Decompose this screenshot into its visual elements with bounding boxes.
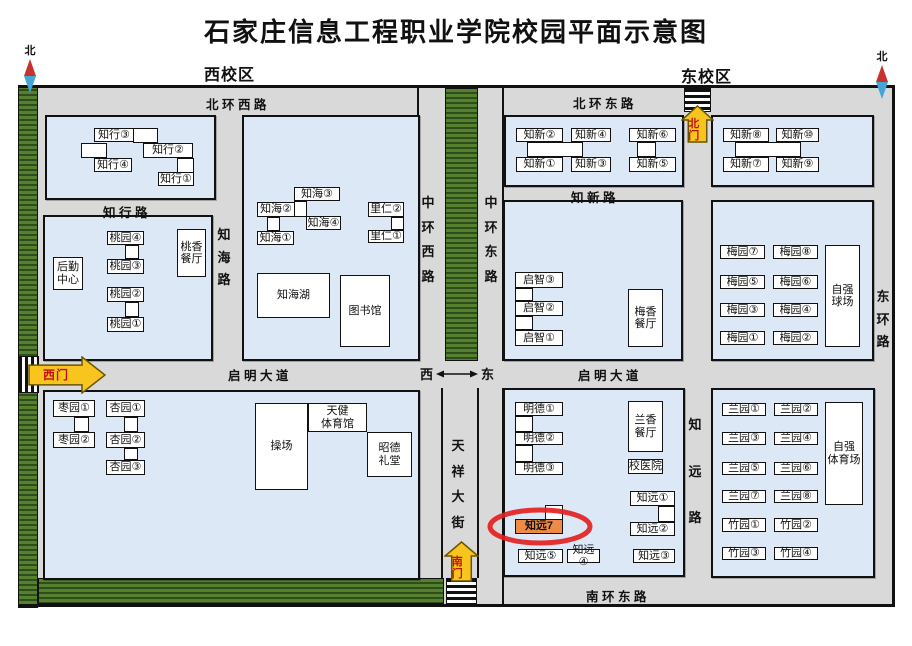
boundary-line bbox=[18, 604, 895, 607]
building-box: 桃园③ bbox=[107, 259, 144, 274]
building-box: 知新⑨ bbox=[776, 157, 819, 172]
building-box: 里仁① bbox=[368, 230, 404, 243]
road-label-char: 东 bbox=[484, 241, 497, 260]
building-box: 知远③ bbox=[633, 549, 675, 563]
direction-west-label: 西 bbox=[420, 364, 433, 383]
building-box: 昭德 礼堂 bbox=[367, 432, 412, 477]
building-box: 知海① bbox=[257, 231, 294, 245]
connector-box bbox=[125, 302, 139, 317]
road-label-char: 西 bbox=[421, 241, 434, 260]
road-label-char: 海 bbox=[217, 247, 230, 266]
connector-box bbox=[267, 217, 280, 231]
road-label: 启 明 大 道 bbox=[228, 365, 288, 384]
building-box: 里仁② bbox=[368, 202, 404, 217]
connector-box bbox=[515, 316, 533, 330]
building-box: 知新⑦ bbox=[723, 157, 769, 172]
road-label-char: 中 bbox=[484, 192, 497, 211]
road-label: 北 环 西 路 bbox=[206, 94, 266, 113]
connector-box bbox=[658, 506, 675, 522]
connector-box bbox=[74, 417, 89, 432]
building-box: 知新⑤ bbox=[629, 157, 676, 172]
building-box: 自强 球场 bbox=[825, 245, 860, 347]
building-box: 知新⑧ bbox=[723, 128, 769, 142]
building-box: 梅园③ bbox=[720, 303, 765, 317]
compass-label: 北 bbox=[25, 42, 36, 58]
building-box: 天健 体育馆 bbox=[308, 403, 367, 432]
road-label: 启 明 大 道 bbox=[578, 365, 638, 384]
building-box: 竹园④ bbox=[774, 547, 818, 560]
building-box: 知新⑥ bbox=[629, 128, 676, 142]
building-box: 兰园⑧ bbox=[774, 490, 818, 503]
connector-box bbox=[515, 288, 533, 301]
road-label: 知 新 路 bbox=[571, 187, 615, 206]
building-box: 杏园③ bbox=[106, 460, 145, 475]
connector-box bbox=[391, 217, 404, 230]
road-label-char: 中 bbox=[421, 192, 434, 211]
compass-arrow-icon bbox=[22, 59, 38, 93]
building-box: 枣园① bbox=[53, 400, 95, 417]
building-box: 枣园② bbox=[53, 432, 95, 448]
building-box: 梅园⑦ bbox=[720, 245, 765, 259]
road-label: 天祥大街 bbox=[451, 435, 465, 531]
building-box: 明德② bbox=[515, 432, 563, 445]
building-box: 操场 bbox=[255, 403, 308, 490]
road-label-char: 祥 bbox=[451, 461, 464, 480]
connector-box bbox=[124, 448, 138, 460]
gate-label: 西门 bbox=[30, 365, 82, 385]
building-box: 杏园② bbox=[106, 432, 145, 448]
building-box: 启智① bbox=[515, 330, 563, 346]
compass-label: 北 bbox=[877, 48, 888, 64]
gate-arrow-west: 西门 bbox=[28, 356, 106, 394]
building-box: 知新⑩ bbox=[776, 128, 819, 142]
boundary-line bbox=[892, 85, 895, 607]
building-box: 兰园⑤ bbox=[722, 462, 766, 475]
building-box: 知行① bbox=[158, 172, 194, 186]
road-label-char: 远 bbox=[688, 461, 701, 480]
building-box: 桃香 餐厅 bbox=[177, 229, 206, 277]
gate-arrow-north: 北门 bbox=[681, 105, 714, 143]
building-box: 梅园① bbox=[720, 331, 765, 345]
connector-box bbox=[294, 201, 307, 217]
building-box: 图书馆 bbox=[340, 275, 390, 347]
gate-label: 北门 bbox=[688, 120, 706, 142]
connector-box bbox=[735, 142, 801, 157]
building-zhiyuan7-highlighted: 知远7 bbox=[515, 519, 563, 534]
direction-east-label: 东 bbox=[481, 364, 494, 383]
building-box: 知远⑤ bbox=[518, 549, 563, 563]
building-box: 梅园④ bbox=[773, 303, 818, 317]
building-box: 自强 体育场 bbox=[825, 402, 863, 505]
building-box: 竹园③ bbox=[722, 547, 766, 560]
road-label-char: 环 bbox=[421, 217, 434, 236]
building-box: 梅园⑥ bbox=[773, 275, 818, 289]
building-box: 知远① bbox=[630, 491, 675, 506]
road-label-char: 街 bbox=[451, 512, 464, 531]
road-label: 北 环 东 路 bbox=[573, 93, 633, 112]
building-box: 知海湖 bbox=[257, 273, 330, 318]
greenbelt bbox=[18, 85, 38, 608]
building-box: 知海② bbox=[257, 202, 295, 217]
building-box: 知远④ bbox=[567, 549, 600, 563]
road-label-char: 大 bbox=[451, 486, 464, 505]
campus-map-canvas: 北 环 西 路北 环 东 路知 行 路知 新 路启 明 大 道启 明 大 道南 … bbox=[0, 0, 912, 646]
building-box: 知新③ bbox=[571, 157, 611, 172]
road-label: 中环西路 bbox=[421, 192, 435, 285]
building-box: 校医院 bbox=[628, 459, 663, 474]
east-campus-label: 东校区 bbox=[681, 63, 732, 87]
building-box: 梅园⑤ bbox=[720, 275, 765, 289]
connector-box bbox=[124, 417, 138, 432]
building-box: 兰园② bbox=[774, 403, 818, 416]
direction-indicator-west-east: 西 东 bbox=[420, 364, 494, 383]
road-label-char: 环 bbox=[876, 309, 889, 328]
building-box: 启智③ bbox=[515, 272, 563, 288]
connector-box bbox=[545, 505, 563, 520]
road-label-char: 知 bbox=[688, 414, 701, 433]
building-box: 杏园① bbox=[106, 400, 145, 417]
building-box: 知新④ bbox=[571, 128, 611, 142]
building-box: 兰园① bbox=[722, 403, 766, 416]
road-label-char: 东 bbox=[876, 286, 889, 305]
building-box: 明德③ bbox=[515, 462, 563, 475]
campus-map-page: 石家庄信息工程职业学院校园平面示意图 北 环 西 路北 环 东 路知 行 路知 … bbox=[0, 0, 912, 646]
greenbelt bbox=[38, 578, 444, 604]
building-box: 桃园④ bbox=[107, 231, 144, 245]
building-box: 梅园② bbox=[773, 331, 818, 345]
road-label-char: 路 bbox=[421, 266, 434, 285]
building-box: 竹园① bbox=[722, 518, 766, 532]
road-label: 东环路 bbox=[876, 286, 890, 350]
compass-north-left: 北 bbox=[22, 42, 38, 93]
road-label-char: 路 bbox=[876, 331, 889, 350]
connector-box bbox=[177, 158, 194, 173]
road-label-char: 天 bbox=[451, 435, 464, 454]
road-label-char: 路 bbox=[217, 269, 230, 288]
gate-arrow-south: 南门 bbox=[444, 541, 479, 582]
compass-north-right: 北 bbox=[874, 48, 890, 99]
building-box: 梅园⑧ bbox=[773, 245, 818, 259]
road-label-char: 知 bbox=[217, 224, 230, 243]
road-label-char: 环 bbox=[484, 217, 497, 236]
connector-box bbox=[515, 416, 533, 432]
building-box: 知海④ bbox=[306, 216, 341, 230]
road-label: 知远路 bbox=[688, 414, 702, 526]
boundary-line bbox=[441, 388, 443, 578]
compass-arrow-icon bbox=[874, 65, 890, 99]
road-label: 知 行 路 bbox=[103, 202, 147, 221]
building-box: 明德① bbox=[515, 402, 563, 416]
building-box: 知远② bbox=[630, 522, 675, 536]
building-box: 后勤 中心 bbox=[53, 257, 83, 290]
connector-box bbox=[637, 142, 656, 157]
building-box: 知行④ bbox=[94, 158, 132, 172]
connector-box bbox=[527, 142, 583, 157]
connector-box bbox=[515, 445, 533, 462]
road-label-char: 路 bbox=[688, 507, 701, 526]
building-box: 桃园① bbox=[107, 317, 144, 332]
road-label: 南 环 东 路 bbox=[586, 586, 646, 605]
building-box: 知行③ bbox=[94, 128, 134, 142]
road-label: 中环东路 bbox=[484, 192, 498, 285]
connector-box bbox=[133, 128, 158, 143]
building-box: 桃园② bbox=[107, 287, 144, 302]
connector-box bbox=[81, 143, 107, 158]
connector-box bbox=[125, 245, 139, 259]
building-box: 启智② bbox=[515, 301, 563, 316]
building-box: 兰香 餐厅 bbox=[628, 401, 663, 452]
building-box: 知行② bbox=[143, 143, 193, 158]
building-box: 竹园② bbox=[774, 518, 818, 532]
boundary-line bbox=[18, 85, 895, 88]
gate-label: 南门 bbox=[452, 556, 472, 581]
building-box: 知海③ bbox=[294, 187, 340, 201]
building-box: 梅香 餐厅 bbox=[628, 289, 663, 347]
building-box: 兰园③ bbox=[722, 432, 766, 445]
double-arrow-icon bbox=[436, 369, 478, 379]
road-label-char: 路 bbox=[484, 266, 497, 285]
building-box: 兰园⑥ bbox=[774, 462, 818, 475]
building-box: 兰园⑦ bbox=[722, 490, 766, 503]
road-label: 知海路 bbox=[217, 224, 231, 288]
west-campus-label: 西校区 bbox=[204, 61, 255, 85]
building-box: 知新① bbox=[516, 157, 563, 172]
building-box: 兰园④ bbox=[774, 432, 818, 445]
building-box: 知新② bbox=[516, 128, 563, 142]
greenbelt bbox=[445, 88, 478, 361]
